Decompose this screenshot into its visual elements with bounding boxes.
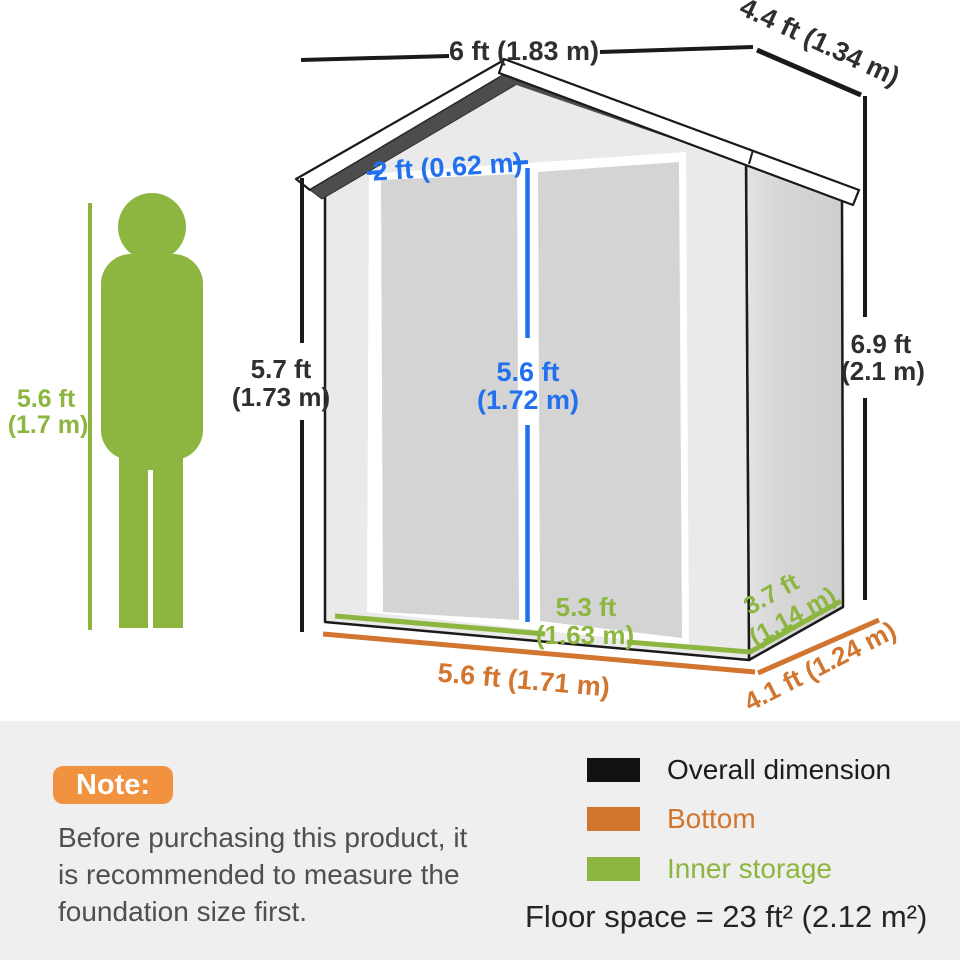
overall-width-dimension: 6 ft (1.83 m) <box>301 36 753 66</box>
legend-row-inner-storage: Inner storage <box>587 853 832 885</box>
front-height-label-m: (1.73 m) <box>232 382 330 412</box>
legend-row-bottom: Bottom <box>587 803 756 835</box>
peak-height-dimension: 6.9 ft (2.1 m) <box>841 96 925 600</box>
floor-space-text: Floor space = 23 ft² (2.12 m²) <box>525 899 955 935</box>
legend-label-bottom: Bottom <box>667 803 756 835</box>
note-badge: Note: <box>53 766 173 804</box>
bottom-width-label: 5.6 ft (1.71 m) <box>437 658 612 703</box>
front-height-label-ft: 5.7 ft <box>251 354 312 384</box>
note-text: Before purchasing this product, it is re… <box>58 819 528 930</box>
legend-label-inner-storage: Inner storage <box>667 853 832 885</box>
overall-depth-dimension: 4.4 ft (1.34 m) <box>735 0 904 95</box>
inner-width-label-m: (1.63 m) <box>536 620 634 650</box>
peak-height-label-ft: 6.9 ft <box>851 329 912 359</box>
person-legs-gap <box>148 470 153 628</box>
inner-width-label-ft: 5.3 ft <box>556 592 617 622</box>
front-height-dimension: 5.7 ft (1.73 m) <box>232 178 330 632</box>
person-height-label-ft: 5.6 ft <box>17 385 76 413</box>
overall-dimension-swatch <box>587 758 640 782</box>
person-head <box>118 193 186 261</box>
bottom-swatch <box>587 807 640 831</box>
person-height-label-m: (1.7 m) <box>8 411 89 439</box>
note-badge-label: Note: <box>76 769 150 802</box>
overall-width-dim-line-right <box>600 47 753 52</box>
note-text-line-1: Before purchasing this product, it <box>58 819 528 856</box>
peak-height-label-m: (2.1 m) <box>841 356 925 386</box>
inner-storage-swatch <box>587 857 640 881</box>
overall-width-label: 6 ft (1.83 m) <box>449 36 599 66</box>
door-height-label-ft: 5.6 ft <box>496 357 559 387</box>
person-figure: 5.6 ft (1.7 m) <box>8 193 203 630</box>
shed-diagram-svg: 5.6 ft (1.7 m) 6 ft (1.83 m) 4.4 ft (1.3… <box>0 0 960 721</box>
info-panel: Note: Before purchasing this product, it… <box>0 721 960 960</box>
note-text-line-2: is recommended to measure the <box>58 856 528 893</box>
note-text-line-3: foundation size first. <box>58 893 528 930</box>
shed <box>296 59 859 660</box>
overall-width-dim-line-left <box>301 56 449 60</box>
legend-label-overall: Overall dimension <box>667 754 891 786</box>
shed-dimension-diagram: 5.6 ft (1.7 m) 6 ft (1.83 m) 4.4 ft (1.3… <box>0 0 960 721</box>
legend-row-overall: Overall dimension <box>587 754 891 786</box>
door-height-label-m: (1.72 m) <box>477 385 579 415</box>
